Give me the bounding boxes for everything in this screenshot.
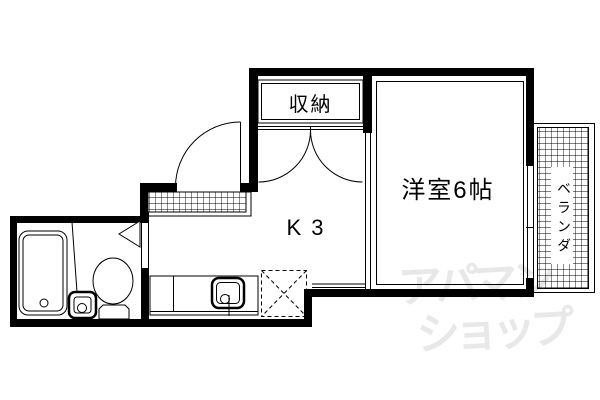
wall-bath-right [141, 268, 148, 326]
kitchen-sink-inner [217, 283, 240, 304]
bathroom [18, 221, 142, 319]
wall-right-upper [526, 68, 534, 166]
bathroom-door [119, 221, 140, 247]
bath-interior-line [18, 222, 78, 292]
washbasin-drain [78, 304, 87, 313]
western-room-label: 洋室6帖 [372, 170, 524, 205]
wall-entrance-right [240, 183, 257, 192]
closet-door-swing-left [259, 130, 311, 182]
washing-machine-space [262, 271, 307, 317]
kitchen-counter [150, 276, 258, 316]
wall-top [249, 68, 534, 76]
kitchen-sink-drain [221, 295, 230, 304]
wall-left-upper [249, 68, 258, 192]
washbasin [69, 292, 96, 318]
entrance-porch [148, 192, 251, 216]
bathtub-drain [40, 299, 48, 307]
wall-window-stub [526, 278, 534, 297]
floorplan: アパマン ショップ [0, 0, 600, 400]
toilet-bowl [93, 258, 133, 304]
porch-hatch [148, 192, 246, 212]
wall-bottom-right [304, 289, 534, 297]
closet-double-door [258, 126, 363, 182]
window [526, 166, 534, 278]
kitchen-label: K 3 [266, 215, 346, 241]
toilet-base [99, 305, 129, 319]
wall-bath-left [10, 216, 17, 326]
washbasin-inner [74, 297, 91, 313]
entrance-door [176, 122, 241, 187]
counter-outline [150, 276, 258, 315]
closet-label: 収納 [258, 88, 363, 117]
closet-door-swing-right [311, 130, 363, 182]
wall-bottom-left [10, 319, 312, 327]
bathtub [19, 231, 67, 315]
entrance-door-swing [176, 122, 241, 187]
veranda-label: ベランダ [550, 171, 574, 267]
wall-closet-right [363, 76, 372, 133]
